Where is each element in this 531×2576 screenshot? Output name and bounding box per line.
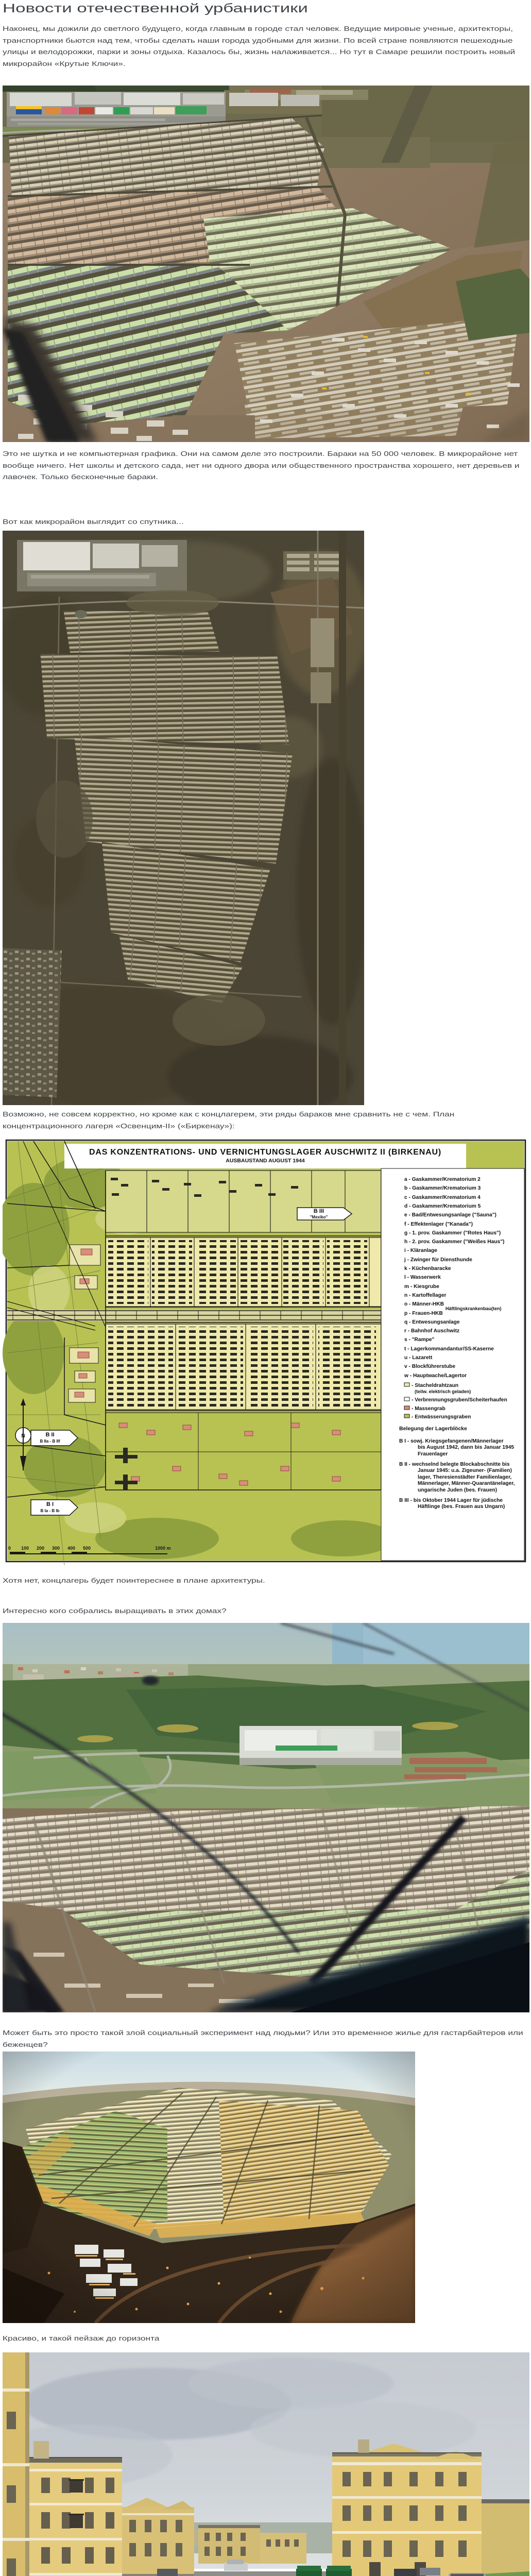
- svg-text:o - Männer-HKB: o - Männer-HKB: [404, 1301, 444, 1307]
- svg-text:n - Kartoffellager: n - Kartoffellager: [404, 1293, 447, 1298]
- svg-text:B Ia - B Ib: B Ia - B Ib: [41, 1509, 60, 1513]
- svg-text:w - Hauptwache/Lagertor: w - Hauptwache/Lagertor: [404, 1373, 467, 1379]
- svg-text:Häftlingskrankenbau(ten): Häftlingskrankenbau(ten): [446, 1306, 502, 1311]
- svg-text:ungarische Juden (bes. Frauen): ungarische Juden (bes. Frauen): [418, 1487, 497, 1493]
- svg-text:bis August 1942, dann bis Janu: bis August 1942, dann bis Januar 1945: [418, 1445, 514, 1450]
- svg-text:c - Gaskammer/Krematorium 4: c - Gaskammer/Krematorium 4: [404, 1195, 481, 1200]
- svg-text:B III - bis Oktober 1944 Lager: B III - bis Oktober 1944 Lager für jüdis…: [399, 1498, 503, 1503]
- svg-text:Häftlinge (bes. Frauen aus Ung: Häftlinge (bes. Frauen aus Ungarn): [418, 1504, 505, 1510]
- svg-text:Belegung der Lagerblöcke: Belegung der Lagerblöcke: [399, 1426, 467, 1432]
- svg-text:k - Küchenbaracke: k - Küchenbaracke: [404, 1266, 451, 1272]
- svg-text:B IIa - B IIf: B IIa - B IIf: [40, 1439, 60, 1444]
- svg-text:- Entwässerungsgraben: - Entwässerungsgraben: [412, 1414, 471, 1420]
- svg-text:"Mexiko": "Mexiko": [310, 1215, 328, 1219]
- svg-text:300: 300: [52, 1546, 60, 1551]
- svg-text:a - Gaskammer/Krematorium 2: a - Gaskammer/Krematorium 2: [404, 1177, 481, 1182]
- svg-text:v - Blockführerstube: v - Blockführerstube: [404, 1364, 455, 1369]
- svg-text:1000 m: 1000 m: [155, 1546, 171, 1551]
- svg-text:100: 100: [21, 1546, 29, 1551]
- svg-text:AUSBAUSTAND AUGUST 1944: AUSBAUSTAND AUGUST 1944: [226, 1158, 305, 1164]
- svg-text:Männerlager, Männer-Quarantäne: Männerlager, Männer-Quarantänelager,: [418, 1481, 515, 1486]
- svg-text:400: 400: [67, 1546, 75, 1551]
- svg-text:200: 200: [37, 1546, 44, 1551]
- svg-text:j - Zwinger für Diensthunde: j - Zwinger für Diensthunde: [404, 1257, 472, 1263]
- svg-text:q - Entwesungsanlage: q - Entwesungsanlage: [404, 1319, 460, 1325]
- svg-text:f - Effektenlager ("Kanada"): f - Effektenlager ("Kanada"): [404, 1222, 473, 1227]
- svg-text:r - Bahnhof Auschwitz: r - Bahnhof Auschwitz: [404, 1328, 459, 1334]
- svg-text:lager, Theresienstädter Famili: lager, Theresienstädter Familienlager,: [418, 1475, 511, 1480]
- svg-text:N: N: [21, 1433, 25, 1439]
- svg-text:i - Kläranlage: i - Kläranlage: [404, 1248, 437, 1253]
- svg-text:B I: B I: [46, 1501, 54, 1507]
- svg-text:Januar 1945: u.a. Zigeuner- (F: Januar 1945: u.a. Zigeuner- (Familien): [418, 1468, 512, 1473]
- svg-text:(teilw. elektrisch geladen): (teilw. elektrisch geladen): [415, 1389, 471, 1394]
- svg-text:m - Kiesgrube: m - Kiesgrube: [404, 1284, 439, 1290]
- svg-text:Frauenlager: Frauenlager: [418, 1451, 448, 1457]
- svg-text:h - 2. prov. Gaskammer ("Weiße: h - 2. prov. Gaskammer ("Weißes Haus"): [404, 1239, 504, 1245]
- svg-text:u - Lazarett: u - Lazarett: [404, 1355, 433, 1361]
- svg-text:B II: B II: [45, 1432, 54, 1438]
- svg-text:d - Gaskammer/Krematorium 5: d - Gaskammer/Krematorium 5: [404, 1204, 481, 1209]
- svg-text:t - Lagerkommandantur/SS-Kaser: t - Lagerkommandantur/SS-Kaserne: [404, 1346, 494, 1352]
- svg-text:- Massengrab: - Massengrab: [412, 1406, 446, 1412]
- svg-text:s - "Rampe": s - "Rampe": [404, 1337, 435, 1343]
- svg-text:0: 0: [8, 1546, 11, 1551]
- svg-text:l - Wasserwerk: l - Wasserwerk: [404, 1275, 441, 1280]
- svg-text:g - 1. prov. Gaskammer ("Rotes: g - 1. prov. Gaskammer ("Rotes Haus"): [404, 1230, 501, 1236]
- svg-text:B I - sowj. Kriegsgefangenen/M: B I - sowj. Kriegsgefangenen/Männerlager: [399, 1438, 504, 1444]
- svg-text:- Verbrennungsgruben/Scheiterh: - Verbrennungsgruben/Scheiterhaufen: [412, 1397, 507, 1403]
- svg-text:- Stacheldrahtzaun: - Stacheldrahtzaun: [412, 1383, 458, 1388]
- svg-text:p - Frauen-HKB: p - Frauen-HKB: [404, 1311, 443, 1316]
- svg-text:B II - wechselnd belegte Block: B II - wechselnd belegte Blockabschnitte…: [399, 1462, 510, 1467]
- svg-text:e - Bad/Entwesungsanlage ("Sau: e - Bad/Entwesungsanlage ("Sauna"): [404, 1212, 496, 1218]
- svg-text:b - Gaskammer/Krematorium 3: b - Gaskammer/Krematorium 3: [404, 1185, 481, 1191]
- svg-text:B III: B III: [314, 1208, 324, 1214]
- svg-text:500: 500: [83, 1546, 91, 1551]
- svg-text:DAS KONZENTRATIONS- UND VERNIC: DAS KONZENTRATIONS- UND VERNICHTUNGSLAGE…: [89, 1148, 441, 1157]
